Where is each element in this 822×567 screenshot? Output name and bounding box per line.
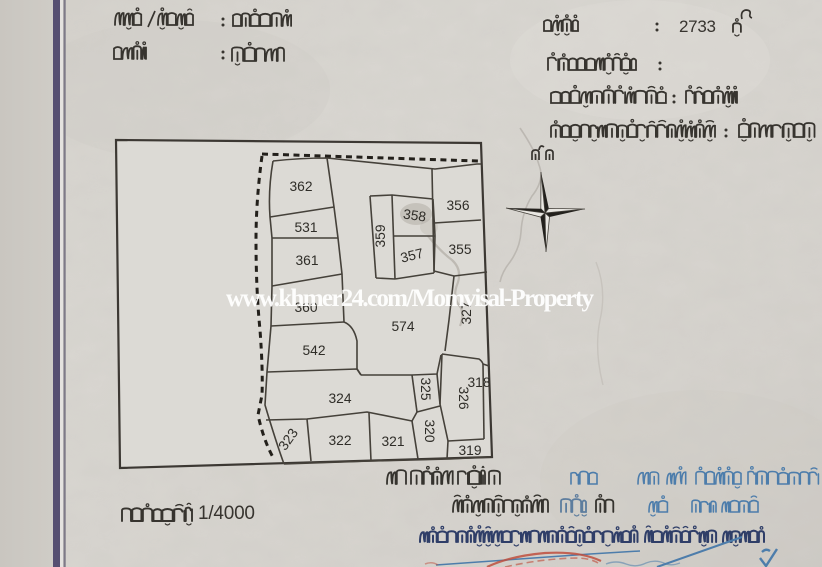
svg-text:362: 362 <box>289 179 312 194</box>
svg-text:542: 542 <box>302 343 325 358</box>
svg-text:321: 321 <box>381 434 404 449</box>
svg-text:355: 355 <box>448 242 471 257</box>
svg-text:2733: 2733 <box>679 17 716 36</box>
svg-text:356: 356 <box>446 198 469 213</box>
svg-text:1/4000: 1/4000 <box>198 503 255 524</box>
svg-text:320: 320 <box>422 419 437 442</box>
svg-text:325: 325 <box>418 377 433 400</box>
svg-text:324: 324 <box>328 391 351 406</box>
svg-text:www.khmer24.com/Momvisal-Prope: www.khmer24.com/Momvisal-Property <box>226 285 595 312</box>
svg-text:361: 361 <box>295 253 318 268</box>
svg-text:326: 326 <box>456 386 471 409</box>
svg-text:531: 531 <box>294 220 317 235</box>
svg-text:319: 319 <box>458 443 481 458</box>
svg-text:359: 359 <box>373 224 388 247</box>
svg-text:574: 574 <box>391 319 414 334</box>
svg-text:322: 322 <box>328 433 351 448</box>
